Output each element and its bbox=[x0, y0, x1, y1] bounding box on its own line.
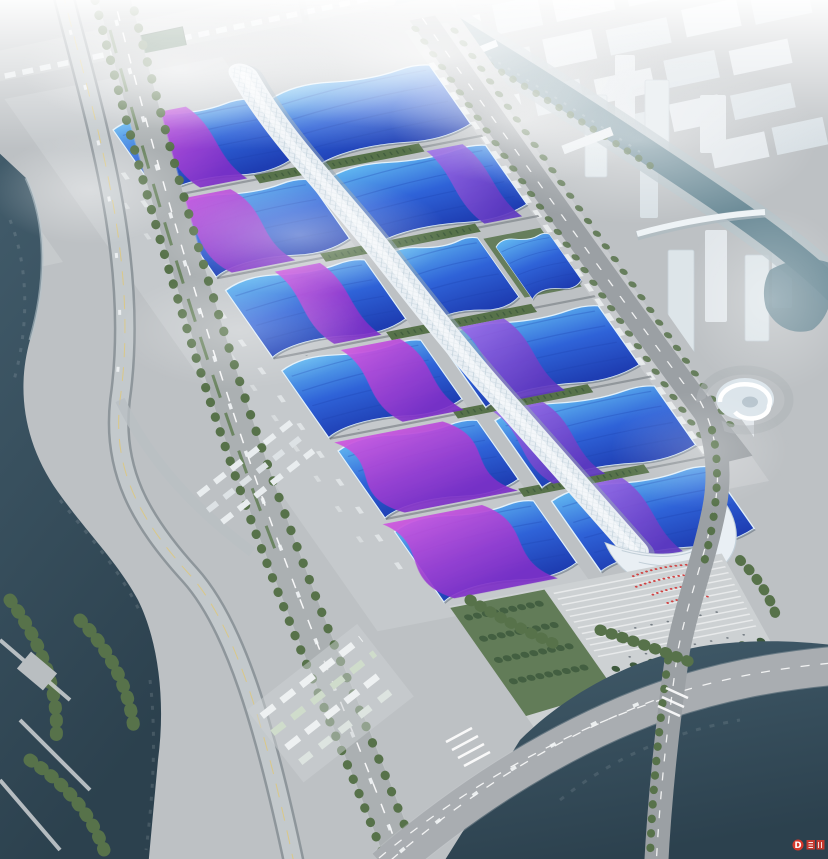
screenshot: D bbox=[0, 0, 828, 859]
watermark-symbol: D bbox=[794, 841, 801, 851]
aerial-rendering-image: D bbox=[0, 0, 828, 859]
watermark-glyph bbox=[817, 840, 825, 850]
watermark: D bbox=[793, 840, 825, 851]
